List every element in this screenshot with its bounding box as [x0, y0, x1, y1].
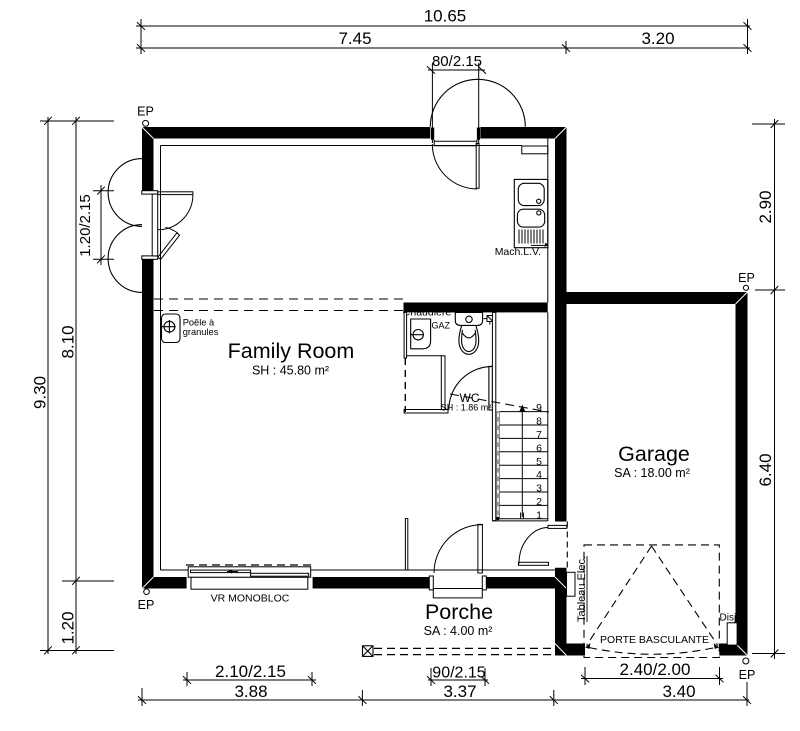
- svg-text:EP: EP: [137, 105, 154, 119]
- svg-text:6: 6: [536, 442, 542, 454]
- svg-text:8: 8: [536, 416, 542, 428]
- svg-text:Family Room: Family Room: [228, 339, 355, 363]
- svg-text:8.10: 8.10: [59, 325, 78, 358]
- svg-text:PORTE BASCULANTE: PORTE BASCULANTE: [600, 634, 709, 646]
- svg-text:SH : 45.80 m²: SH : 45.80 m²: [252, 364, 329, 378]
- svg-text:2.10/2.15: 2.10/2.15: [215, 662, 286, 681]
- svg-text:VR MONOBLOC: VR MONOBLOC: [211, 593, 290, 605]
- svg-text:4: 4: [536, 469, 542, 481]
- svg-text:1: 1: [536, 509, 542, 521]
- svg-text:Porche: Porche: [425, 600, 493, 624]
- svg-text:2.90: 2.90: [756, 190, 775, 223]
- svg-text:3.88: 3.88: [234, 682, 267, 701]
- svg-text:80/2.15: 80/2.15: [432, 53, 482, 70]
- svg-text:EP: EP: [738, 271, 755, 285]
- svg-text:3.20: 3.20: [641, 29, 674, 48]
- svg-text:7.45: 7.45: [338, 29, 371, 48]
- svg-text:GAZ: GAZ: [432, 321, 451, 331]
- svg-text:5: 5: [536, 456, 542, 468]
- svg-text:3.37: 3.37: [443, 682, 476, 701]
- svg-text:Garage: Garage: [618, 442, 690, 466]
- svg-text:9.30: 9.30: [31, 376, 50, 409]
- svg-text:10.65: 10.65: [424, 7, 467, 26]
- svg-text:Disj.: Disj.: [720, 613, 739, 624]
- svg-text:1.20/2.15: 1.20/2.15: [77, 194, 94, 257]
- svg-text:3: 3: [536, 483, 542, 495]
- svg-text:Mach.L.V.: Mach.L.V.: [495, 246, 541, 258]
- svg-text:7: 7: [536, 429, 542, 441]
- svg-text:1.20: 1.20: [59, 611, 78, 644]
- svg-text:9: 9: [536, 402, 542, 414]
- svg-text:Tableau Elec.: Tableau Elec.: [576, 556, 588, 622]
- svg-text:SA : 18.00 m²: SA : 18.00 m²: [614, 466, 690, 480]
- svg-text:EP: EP: [739, 668, 756, 682]
- svg-text:2.40/2.00: 2.40/2.00: [620, 660, 691, 679]
- svg-text:granules: granules: [183, 327, 219, 337]
- svg-text:3.40: 3.40: [662, 682, 695, 701]
- svg-text:SH : 1.86 m²: SH : 1.86 m²: [441, 403, 492, 413]
- svg-text:2: 2: [536, 496, 542, 508]
- svg-text:90/2.15: 90/2.15: [432, 665, 485, 682]
- svg-text:SA : 4.00 m²: SA : 4.00 m²: [424, 624, 493, 638]
- svg-text:6.40: 6.40: [756, 453, 775, 486]
- svg-text:EP: EP: [138, 598, 155, 612]
